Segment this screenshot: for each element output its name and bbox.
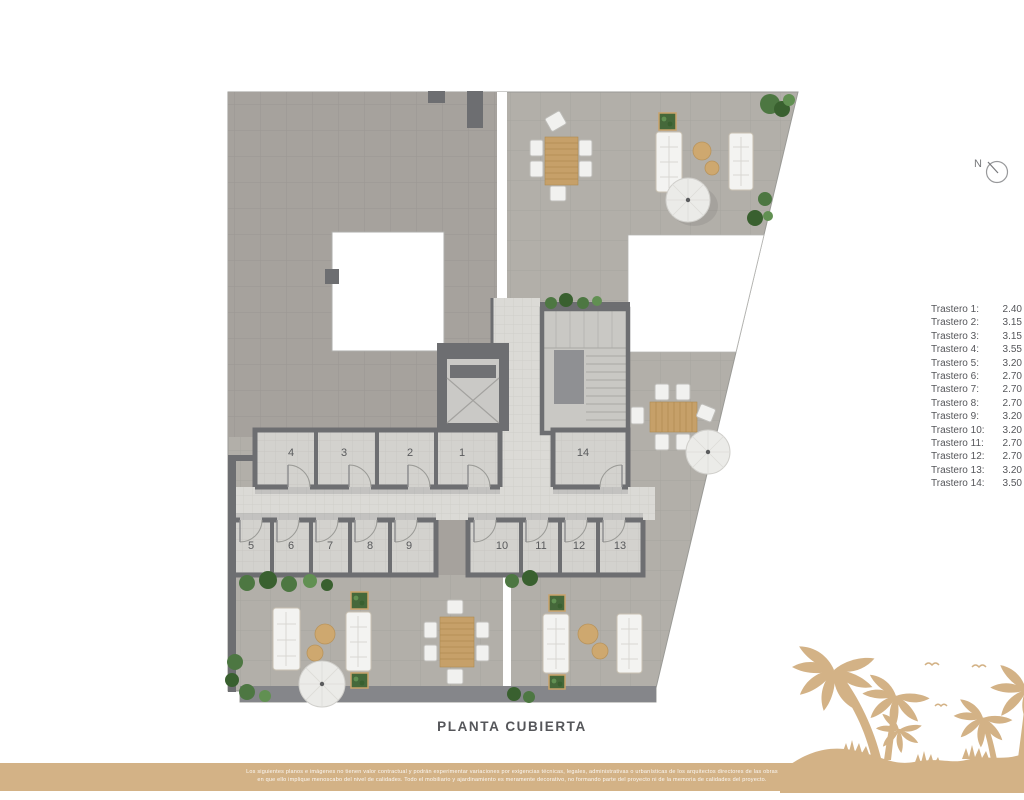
legend-value: 2.40 xyxy=(1003,303,1022,316)
room-number-label: 5 xyxy=(248,540,254,552)
legend-label: Trastero 5: xyxy=(931,357,979,370)
elevator xyxy=(437,343,509,431)
room-number-label: 9 xyxy=(406,540,412,552)
legend-value: 3.50 xyxy=(1003,477,1022,490)
roof-void xyxy=(332,232,444,351)
palm-silhouette xyxy=(780,608,1024,793)
legend-label: Trastero 8: xyxy=(931,397,979,410)
legend-row: Trastero 3:3.15 xyxy=(931,330,1022,343)
room-number-label: 14 xyxy=(577,447,589,459)
room-number-label: 10 xyxy=(496,540,508,552)
legend-row: Trastero 8:2.70 xyxy=(931,397,1022,410)
legend-row: Trastero 6:2.70 xyxy=(931,370,1022,383)
room-number-label: 1 xyxy=(459,447,465,459)
north-label: N xyxy=(974,158,982,170)
legend-label: Trastero 9: xyxy=(931,410,979,423)
room-number-label: 8 xyxy=(367,540,373,552)
legend-row: Trastero 2:3.15 xyxy=(931,316,1022,329)
legend-value: 3.20 xyxy=(1003,424,1022,437)
legend-row: Trastero 4:3.55 xyxy=(931,343,1022,356)
legend-value: 2.70 xyxy=(1003,437,1022,450)
legend-row: Trastero 14:3.50 xyxy=(931,477,1022,490)
stair-landing xyxy=(554,350,584,404)
legend-label: Trastero 3: xyxy=(931,330,979,343)
roof-gap xyxy=(503,575,511,688)
legend-value: 3.15 xyxy=(1003,330,1022,343)
palm-crown xyxy=(954,697,1013,748)
legend-label: Trastero 1: xyxy=(931,303,979,316)
legend-label: Trastero 2: xyxy=(931,316,979,329)
legend-value: 3.55 xyxy=(1003,343,1022,356)
legend-row: Trastero 9:3.20 xyxy=(931,410,1022,423)
legend-value: 2.70 xyxy=(1003,370,1022,383)
legend-label: Trastero 10: xyxy=(931,424,985,437)
roof-void xyxy=(628,235,764,352)
legend-label: Trastero 13: xyxy=(931,464,985,477)
legend-label: Trastero 4: xyxy=(931,343,979,356)
legend-value: 3.20 xyxy=(1003,410,1022,423)
page: 4321145678910111213 N Trastero 1:2.40Tra… xyxy=(0,0,1024,800)
legend-label: Trastero 6: xyxy=(931,370,979,383)
legend-value: 3.15 xyxy=(1003,316,1022,329)
room-number-label: 2 xyxy=(407,447,413,459)
north-indicator: N xyxy=(974,158,1008,183)
legend-row: Trastero 1:2.40 xyxy=(931,303,1022,316)
legend-label: Trastero 14: xyxy=(931,477,985,490)
room-number-label: 6 xyxy=(288,540,294,552)
legend-value: 2.70 xyxy=(1003,450,1022,463)
palm-crown xyxy=(792,642,876,712)
room-number-label: 12 xyxy=(573,540,585,552)
birds xyxy=(925,663,986,706)
grass-tuft xyxy=(914,751,941,765)
grass-tuft xyxy=(962,745,989,759)
legend-value: 3.20 xyxy=(1003,357,1022,370)
parasol xyxy=(686,430,730,474)
north-needle xyxy=(988,162,998,173)
legend: Trastero 1:2.40Trastero 2:3.15Trastero 3… xyxy=(931,303,1022,491)
room-number-label: 3 xyxy=(341,447,347,459)
room-number-label: 13 xyxy=(614,540,626,552)
legend-value: 3.20 xyxy=(1003,464,1022,477)
legend-value: 2.70 xyxy=(1003,383,1022,396)
legend-row: Trastero 7:2.70 xyxy=(931,383,1022,396)
legend-label: Trastero 11: xyxy=(931,437,984,450)
legend-value: 2.70 xyxy=(1003,397,1022,410)
roof-gap xyxy=(497,92,507,308)
legend-row: Trastero 5:3.20 xyxy=(931,357,1022,370)
palm-crown xyxy=(862,671,929,729)
legend-row: Trastero 10:3.20 xyxy=(931,424,1022,437)
grass-tuft xyxy=(842,740,869,754)
parasol xyxy=(299,661,345,707)
legend-row: Trastero 12:2.70 xyxy=(931,450,1022,463)
legend-label: Trastero 7: xyxy=(931,383,979,396)
legend-label: Trastero 12: xyxy=(931,450,985,463)
legend-row: Trastero 13:3.20 xyxy=(931,464,1022,477)
room-number-label: 11 xyxy=(535,540,546,552)
room-number-label: 7 xyxy=(327,540,333,552)
room-number-label: 4 xyxy=(288,447,294,459)
legend-row: Trastero 11:2.70 xyxy=(931,437,1022,450)
